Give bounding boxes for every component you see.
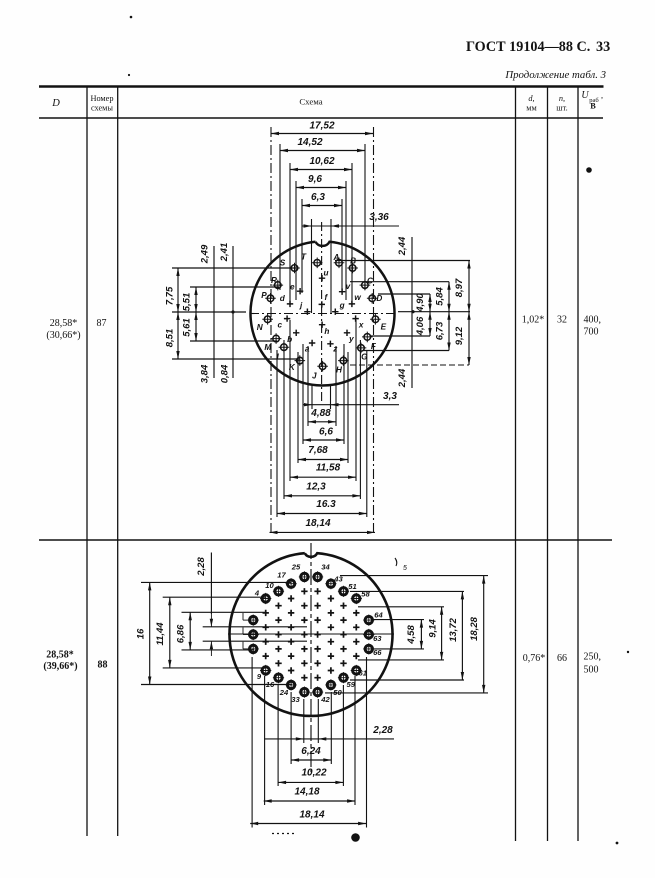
svg-text:3,3: 3,3 <box>383 391 397 402</box>
svg-text:3,84: 3,84 <box>200 364 211 383</box>
svg-text:R: R <box>271 276 277 285</box>
svg-text:12,3: 12,3 <box>306 482 326 493</box>
svg-text:N: N <box>257 323 264 332</box>
svg-text:L: L <box>276 352 281 361</box>
svg-text:H: H <box>336 366 343 375</box>
svg-text:c: c <box>278 321 283 330</box>
svg-text:T: T <box>301 253 307 262</box>
svg-text:B: B <box>350 257 356 266</box>
svg-text:шт.: шт. <box>556 104 567 113</box>
svg-text:8,51: 8,51 <box>165 329 176 348</box>
svg-text:2,28: 2,28 <box>372 725 393 736</box>
svg-text:v: v <box>346 282 351 291</box>
svg-text:4,58: 4,58 <box>406 625 417 645</box>
svg-text:4,88: 4,88 <box>310 408 331 419</box>
svg-text:5: 5 <box>403 565 407 572</box>
svg-text:700: 700 <box>584 327 599 338</box>
svg-text:U: U <box>581 90 589 101</box>
svg-text:61: 61 <box>358 668 366 677</box>
svg-text:59: 59 <box>346 680 355 689</box>
svg-text:32: 32 <box>557 315 567 326</box>
svg-text:,: , <box>601 91 603 100</box>
svg-text:y: y <box>348 334 354 343</box>
svg-text:9,14: 9,14 <box>428 619 439 638</box>
svg-text:87: 87 <box>97 318 107 329</box>
svg-text:J: J <box>312 371 317 380</box>
svg-text:16.3: 16.3 <box>316 499 336 510</box>
svg-text:4,06: 4,06 <box>415 316 426 336</box>
svg-text:1,02*: 1,02* <box>522 315 545 326</box>
svg-text:63: 63 <box>373 634 382 643</box>
svg-text:g: g <box>339 301 345 310</box>
svg-text:P: P <box>261 291 267 300</box>
svg-text:K: K <box>289 363 296 372</box>
svg-text:D: D <box>376 294 382 303</box>
svg-text:17: 17 <box>277 570 286 579</box>
svg-text:3,36: 3,36 <box>369 212 389 223</box>
svg-text:w: w <box>354 293 361 302</box>
svg-text:9,12: 9,12 <box>454 326 465 345</box>
svg-text:5,61: 5,61 <box>182 318 193 337</box>
svg-text:7,75: 7,75 <box>165 286 176 305</box>
svg-text:28,58*: 28,58* <box>46 650 74 661</box>
svg-text:64: 64 <box>374 610 383 619</box>
svg-text:6,6: 6,6 <box>319 427 333 438</box>
svg-text:6,86: 6,86 <box>176 624 187 643</box>
svg-text:2,44: 2,44 <box>397 236 408 256</box>
svg-text:4,90: 4,90 <box>415 293 426 313</box>
svg-text:14,18: 14,18 <box>294 787 319 798</box>
svg-text:5,51: 5,51 <box>182 293 193 312</box>
svg-text:7,68: 7,68 <box>308 445 328 456</box>
svg-text:D: D <box>51 98 60 109</box>
svg-text:2,49: 2,49 <box>200 244 211 264</box>
svg-text:11,44: 11,44 <box>155 622 166 646</box>
svg-text:M: M <box>264 343 271 352</box>
svg-text:d,: d, <box>528 94 534 103</box>
svg-text:9,6: 9,6 <box>308 174 322 185</box>
svg-text:a: a <box>305 344 310 353</box>
svg-text:z: z <box>332 344 338 353</box>
svg-text:66: 66 <box>557 653 567 664</box>
svg-text:14,52: 14,52 <box>297 137 322 148</box>
svg-text:88: 88 <box>98 660 108 671</box>
svg-text:h: h <box>324 327 329 336</box>
svg-text:51: 51 <box>348 582 356 591</box>
svg-text:250,: 250, <box>584 652 602 663</box>
svg-text:f: f <box>325 293 329 302</box>
svg-text:6,73: 6,73 <box>435 321 446 340</box>
svg-text:17,52: 17,52 <box>309 121 334 132</box>
svg-text:G: G <box>361 352 368 361</box>
svg-text:Схема: Схема <box>299 97 322 107</box>
svg-text:0,76*: 0,76* <box>523 653 546 664</box>
svg-text:E: E <box>381 323 387 332</box>
svg-text:24: 24 <box>279 688 289 697</box>
svg-text:5,84: 5,84 <box>435 287 446 306</box>
svg-text:S: S <box>280 259 286 268</box>
svg-text:28,58*: 28,58* <box>50 318 78 329</box>
svg-text:d: d <box>280 294 286 303</box>
svg-text:11,58: 11,58 <box>316 463 341 474</box>
svg-text:n,: n, <box>559 94 565 103</box>
svg-text:10,22: 10,22 <box>301 768 326 779</box>
svg-text:9: 9 <box>257 672 262 681</box>
svg-text:16: 16 <box>136 628 147 639</box>
svg-text:500: 500 <box>584 665 599 676</box>
svg-text:13,72: 13,72 <box>448 617 459 641</box>
svg-text:схемы: схемы <box>91 104 113 113</box>
svg-text:10,62: 10,62 <box>309 156 334 167</box>
svg-text:18,14: 18,14 <box>299 809 324 820</box>
svg-text:2,44: 2,44 <box>397 368 408 388</box>
svg-text:33: 33 <box>291 695 300 704</box>
svg-text:b: b <box>287 335 292 344</box>
svg-text:(39,66*): (39,66*) <box>43 661 77 672</box>
svg-text:Продолжение табл. 3: Продолжение табл. 3 <box>504 69 606 81</box>
svg-text:34: 34 <box>321 563 330 572</box>
svg-text:x: x <box>358 321 364 330</box>
svg-text:33: 33 <box>596 39 610 55</box>
svg-text:В: В <box>590 102 596 111</box>
svg-text:18,14: 18,14 <box>305 518 330 529</box>
svg-text:e: e <box>290 282 295 291</box>
svg-text:42: 42 <box>320 695 330 704</box>
svg-text:Номер: Номер <box>90 94 113 103</box>
svg-text:18,28: 18,28 <box>469 616 480 640</box>
svg-text:2,28: 2,28 <box>196 557 207 577</box>
svg-text:F: F <box>371 342 377 351</box>
svg-text:ГОСТ 19104—88 С.: ГОСТ 19104—88 С. <box>466 39 590 55</box>
svg-text:мм: мм <box>526 104 537 113</box>
svg-text:2,41: 2,41 <box>219 243 230 263</box>
svg-text:8,97: 8,97 <box>454 278 465 297</box>
svg-text:j: j <box>299 301 303 310</box>
svg-text:(30,66*): (30,66*) <box>46 330 80 341</box>
svg-text:25: 25 <box>291 563 301 572</box>
svg-text:6,3: 6,3 <box>311 192 325 203</box>
svg-text:400,: 400, <box>584 315 602 326</box>
svg-text:A: A <box>333 253 340 262</box>
svg-text:0,84: 0,84 <box>220 364 231 383</box>
svg-text:4: 4 <box>254 589 260 598</box>
svg-text:6,24: 6,24 <box>301 746 321 757</box>
svg-text:u: u <box>323 269 328 278</box>
